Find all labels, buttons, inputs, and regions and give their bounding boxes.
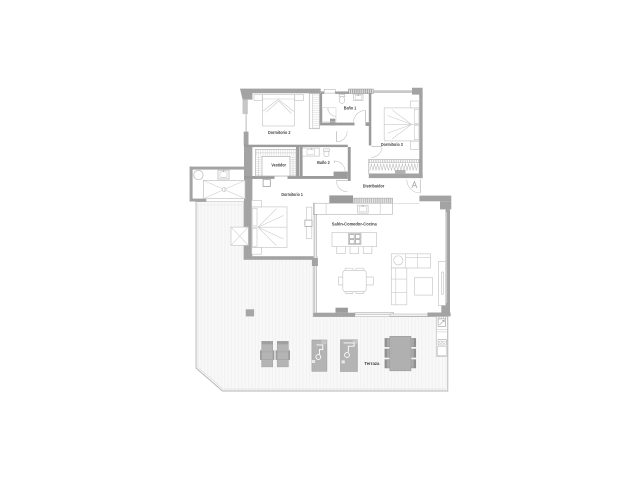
svg-text:Dormitorio 3: Dormitorio 3 (381, 142, 403, 147)
svg-text:Baño 1: Baño 1 (344, 105, 357, 110)
svg-text:Dormitorio 2: Dormitorio 2 (268, 130, 291, 135)
svg-text:Baño 2: Baño 2 (317, 160, 330, 165)
svg-text:Terraza: Terraza (364, 361, 379, 366)
svg-text:Salón-Comedor-Cocina: Salón-Comedor-Cocina (332, 221, 377, 226)
svg-text:Dormitorio 1: Dormitorio 1 (281, 192, 303, 197)
svg-text:Distribuidor: Distribuidor (363, 184, 385, 189)
svg-text:Vestidor: Vestidor (271, 162, 286, 167)
